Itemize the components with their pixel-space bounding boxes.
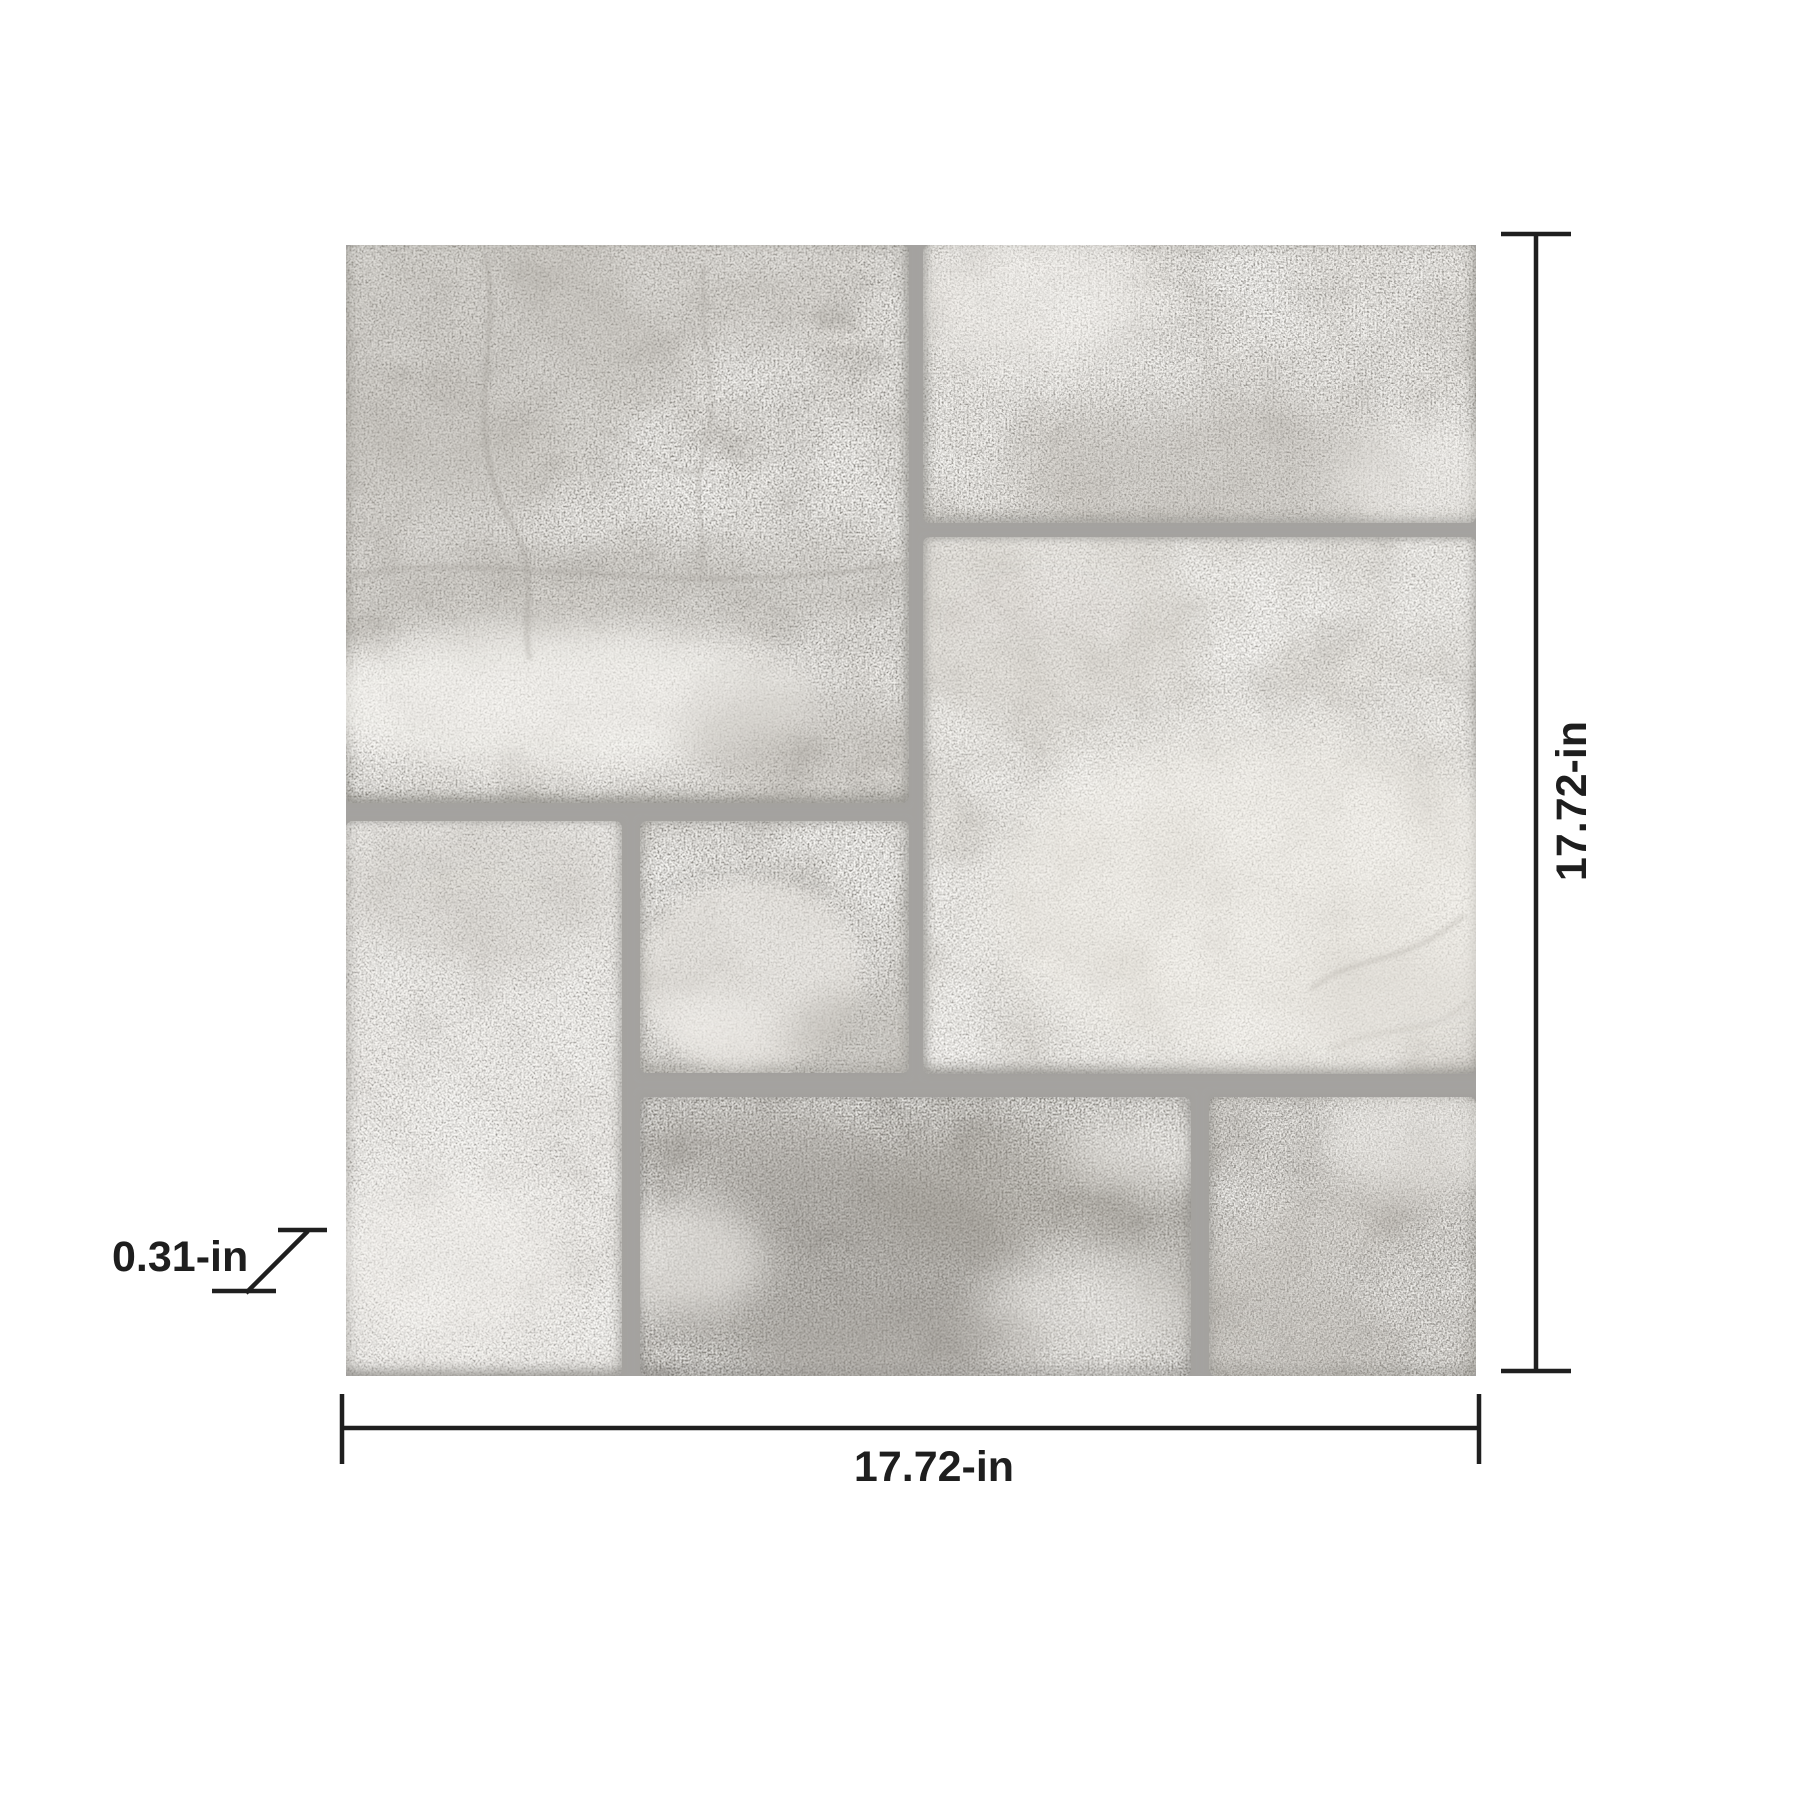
svg-text:17.72-in: 17.72-in (854, 1443, 1014, 1491)
svg-text:0.31-in: 0.31-in (112, 1233, 248, 1281)
svg-text:17.72-in: 17.72-in (1548, 721, 1596, 881)
